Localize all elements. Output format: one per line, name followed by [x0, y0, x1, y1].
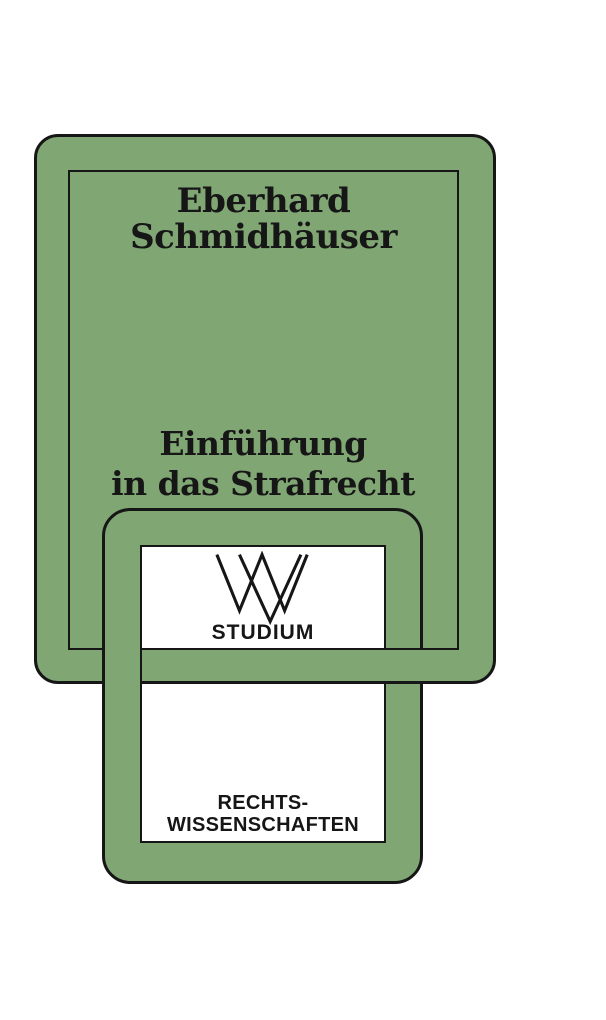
category-line-2: WISSENSCHAFTEN: [142, 815, 384, 837]
book-cover-page: Eberhard Schmidhäuser Einführung in das …: [0, 0, 606, 1020]
interlaced-band: [142, 648, 448, 684]
category-line-1: RECHTS-: [142, 793, 384, 815]
author-name: Eberhard Schmidhäuser: [68, 183, 459, 255]
category-label: RECHTS- WISSENSCHAFTEN: [142, 793, 384, 836]
book-title: Einführung in das Strafrecht: [53, 424, 473, 504]
author-line-1: Eberhard: [68, 183, 459, 219]
wv-monogram-icon: [212, 551, 313, 626]
title-line-1: Einführung: [53, 424, 473, 464]
series-label: STUDIUM: [142, 622, 384, 644]
author-line-2: Schmidhäuser: [68, 219, 459, 255]
title-line-2: in das Strafrecht: [53, 464, 473, 504]
